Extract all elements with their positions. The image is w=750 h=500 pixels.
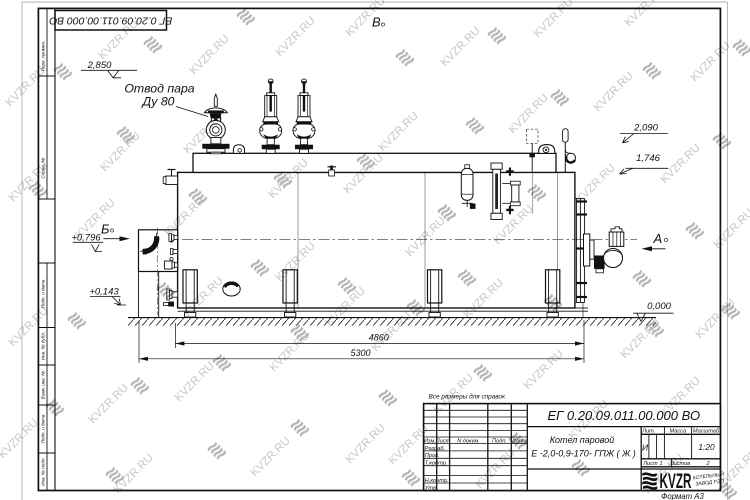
- svg-text:Формат А3: Формат А3: [661, 492, 704, 500]
- svg-text:Подп.: Подп.: [492, 438, 507, 444]
- svg-text:А: А: [653, 231, 663, 246]
- svg-text:Котел паровой: Котел паровой: [550, 435, 615, 445]
- svg-text:Б: Б: [101, 222, 110, 237]
- svg-text:Масштаб: Масштаб: [693, 429, 720, 435]
- svg-text:Разраб.: Разраб.: [425, 446, 445, 452]
- svg-text:Подп. и дата: Подп. и дата: [41, 414, 46, 443]
- svg-text:1,746: 1,746: [636, 153, 660, 164]
- svg-text:2,850: 2,850: [87, 60, 112, 71]
- svg-text:Изм.: Изм.: [424, 438, 436, 444]
- svg-text:Инв. № дубл.: Инв. № дубл.: [41, 332, 46, 360]
- svg-text:ЕГ 0.20.09.011.00.000 ВО: ЕГ 0.20.09.011.00.000 ВО: [548, 408, 701, 423]
- svg-text:Лист: Лист: [435, 438, 451, 444]
- svg-text:Утв.: Утв.: [424, 485, 438, 491]
- svg-text:Подп. и дата: Подп. и дата: [41, 279, 46, 308]
- svg-text:Инв. № подл.: Инв. № подл.: [41, 457, 46, 486]
- svg-text:2,090: 2,090: [633, 123, 658, 134]
- svg-text:ЕГ 0.20.09.011.00.000 ВО: ЕГ 0.20.09.011.00.000 ВО: [49, 15, 172, 27]
- svg-text:1:20: 1:20: [698, 442, 715, 452]
- svg-text:Пров.: Пров.: [425, 453, 440, 459]
- svg-text:+0,143: +0,143: [89, 287, 119, 298]
- svg-text:Отвод пара: Отвод пара: [124, 82, 194, 96]
- svg-text:N докум.: N докум.: [457, 438, 480, 444]
- svg-text:Лист: Лист: [642, 461, 658, 467]
- svg-text:Н.контр.: Н.контр.: [425, 478, 449, 484]
- svg-text:Е -2,0-0,9-170- ГПЖ ( Ж ): Е -2,0-0,9-170- ГПЖ ( Ж ): [531, 449, 635, 459]
- svg-text:Ду 80: Ду 80: [140, 95, 174, 109]
- svg-text:0,000: 0,000: [647, 301, 671, 312]
- svg-text:Перв. примен.: Перв. примен.: [41, 41, 46, 72]
- svg-text:Лит.: Лит.: [641, 429, 655, 435]
- svg-text:Взам. инв. №: Взам. инв. №: [41, 371, 46, 399]
- svg-text:Т.контр.: Т.контр.: [425, 461, 448, 467]
- svg-text:И: И: [642, 443, 649, 453]
- svg-text:5300: 5300: [350, 348, 370, 358]
- svg-text:Масса: Масса: [670, 429, 687, 435]
